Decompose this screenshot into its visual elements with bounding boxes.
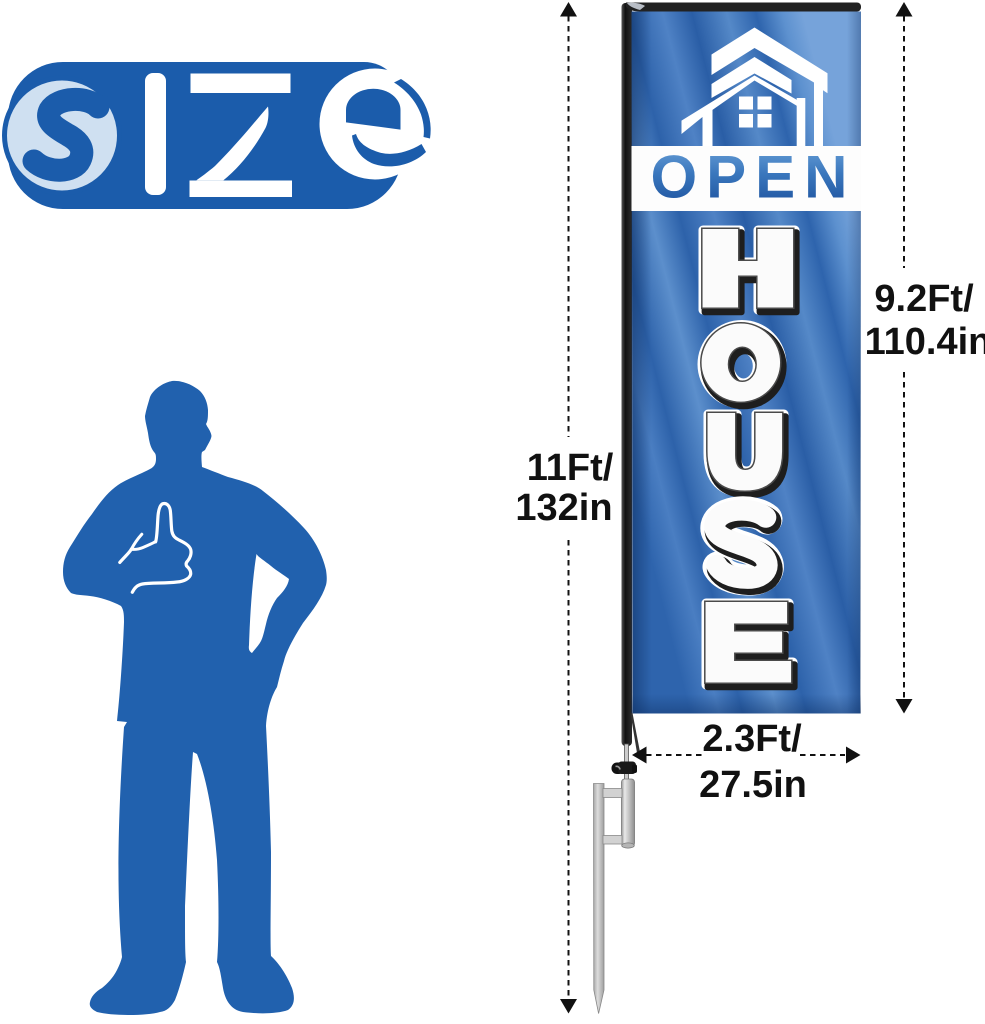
svg-text:9.2Ft/: 9.2Ft/ [874,278,974,320]
svg-text:OPEN: OPEN [650,144,856,211]
svg-text:2.3Ft/: 2.3Ft/ [702,718,802,760]
svg-text:27.5in: 27.5in [699,764,807,806]
svg-text:110.4in: 110.4in [865,321,985,363]
svg-text:11Ft/: 11Ft/ [527,447,614,489]
svg-text:132in: 132in [515,487,612,529]
